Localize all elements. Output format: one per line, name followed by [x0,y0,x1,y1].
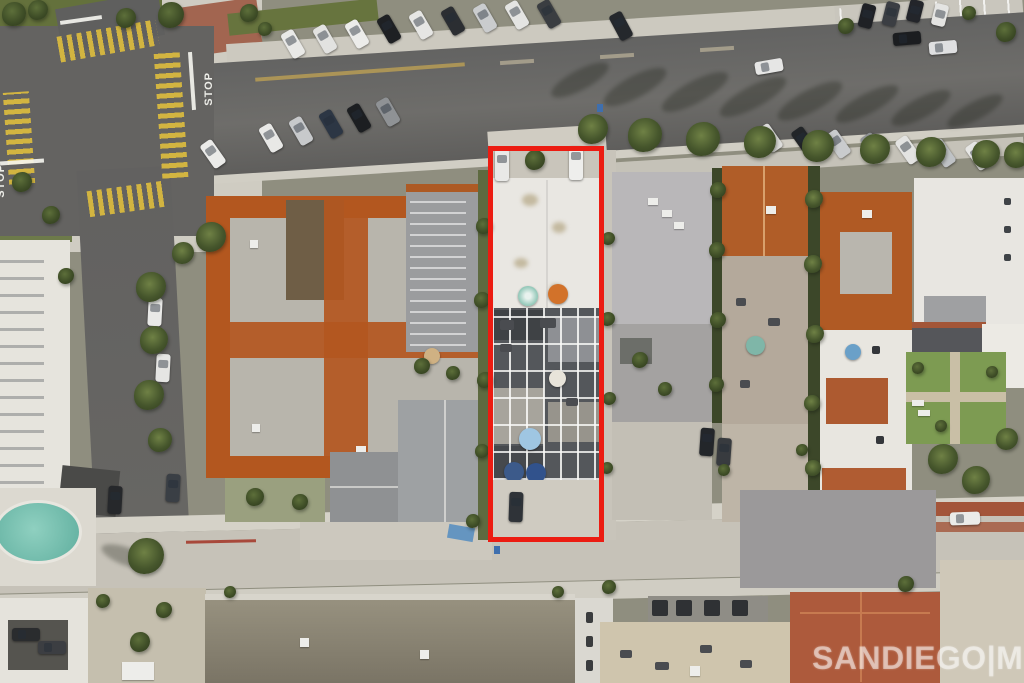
carport-car [12,628,40,641]
palm-tree [962,466,990,494]
deck-furniture [700,645,712,653]
deck-furniture [740,660,752,668]
parked-car [107,486,122,515]
parked-car [699,428,715,457]
garden-path [950,352,960,444]
window [1004,198,1011,205]
parked-car [716,438,732,467]
roof-unit [662,210,672,217]
skylight [250,240,258,248]
ridge-line [800,612,930,614]
deck-furniture [655,662,669,670]
deck-furniture [740,380,750,388]
window [872,346,880,354]
rooftop-planters-building [740,490,936,588]
palm-tree [928,444,958,474]
skylight [420,650,429,659]
palm-tree [172,242,194,264]
window [876,436,884,444]
tile-gable-house [722,166,808,256]
shingle-roof-building [205,600,575,683]
palm-tree [972,140,1000,168]
carport-car [38,641,66,654]
deck-table [690,666,700,676]
condo-balcony-stripes [0,248,44,518]
ac-unit [652,600,668,616]
roof-unit [862,210,872,218]
window [1004,254,1011,261]
tree [58,268,74,284]
subject-property-outline [488,146,604,542]
blue-bin [597,104,603,112]
flat-roof-inset [840,232,892,294]
skylight-streaks [410,196,466,346]
parked-car [165,474,180,503]
roof-unit [648,198,658,205]
skylight [252,424,260,432]
ridge-line [763,166,765,256]
tree [258,22,272,36]
roof-unit [674,222,684,229]
ac-unit [732,600,748,616]
ridge-line [444,400,446,522]
blue-bin [494,546,500,554]
palm-tree [1004,142,1024,168]
lounger [912,400,924,406]
ridge-line [330,486,402,488]
stop-marking-east: STOP [203,72,215,106]
neighbor-driveway [612,422,712,520]
car-on-road [928,40,957,55]
stop-marking-west: STOP [0,164,7,198]
window [586,612,593,623]
lounger [918,410,930,416]
roof-unit [766,206,776,214]
tile-wing-vertical [324,196,368,478]
shed [122,662,154,680]
parked-car [155,354,170,383]
ac-unit [704,600,720,616]
deck-furniture [620,650,632,658]
window [586,660,593,671]
alley-truck [950,511,980,525]
tile-hip-roof [826,378,888,424]
palm-tree [996,428,1018,450]
aerial-photo: STOP STOP [0,0,1024,683]
gray-flat-roof-building [612,172,712,324]
window [586,636,593,647]
blue-umbrella [845,344,861,360]
yard-spanish-building [225,478,325,522]
deck-furniture [768,318,780,326]
window [1004,226,1011,233]
rooftop-deck [722,256,808,424]
skylight [300,638,309,647]
car-on-road [892,31,921,46]
deck-furniture [736,298,746,306]
ac-unit [676,600,692,616]
teal-umbrella [746,336,765,355]
mls-watermark: SANDIEGO|MLS [812,640,1024,677]
